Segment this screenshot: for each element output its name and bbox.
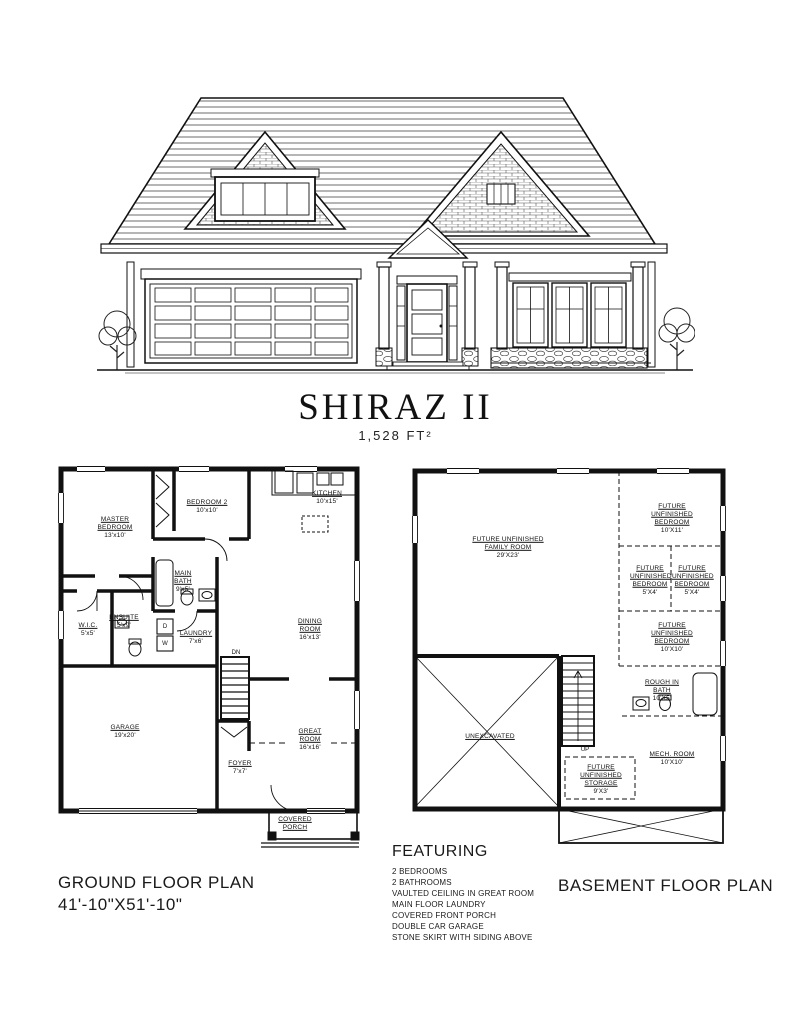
room-label-basement-bedroom-b: FUTURE UNFINISHED BEDROOM 5'X4' [630,565,670,598]
stairs-dn-label: DN [232,650,241,656]
featuring-section: FEATURING 2 BEDROOMS 2 BATHROOMS VAULTED… [392,843,582,943]
room-label-storage: FUTURE UNFINISHED STORAGE 9'X3' [578,764,624,797]
room-label-bedroom2: BEDROOM 2 10'x10' [183,499,231,515]
room-label-basement-bedroom-a: FUTURE UNFINISHED BEDROOM 10'X11' [645,503,699,536]
room-label-laundry: LAUNDRY 7'x6' [176,630,216,646]
plan-area: 1,528 FT² [0,428,791,443]
dryer-label: D [163,624,167,630]
floor-plan-sheet: SHIRAZ II 1,528 FT² [0,0,791,1024]
room-label-kitchen: KITCHEN 10'x15' [304,490,350,506]
room-label-mech-room: MECH. ROOM 10'X10' [639,751,705,767]
room-label-foyer: FOYER 7'x7' [222,760,258,776]
featuring-heading: FEATURING [392,843,582,861]
room-label-great-room: GREAT ROOM 16'x16' [292,728,328,752]
basement-caption-title: BASEMENT FLOOR PLAN [558,875,773,897]
room-label-master-bedroom: MASTER BEDROOM 13'x10' [94,516,136,540]
front-elevation-drawing [95,26,695,376]
featuring-item: VAULTED CEILING IN GREAT ROOM [392,888,582,899]
unexcavated-area [415,656,559,807]
room-label-wic: W.I.C. 5'x5' [74,622,102,638]
ground-floor-caption-dimensions: 41'-10"X51'-10" [58,894,254,916]
basement-stoop [559,809,723,843]
featuring-item: DOUBLE CAR GARAGE [392,921,582,932]
room-label-family-room: FUTURE UNFINISHED FAMILY ROOM 29'X23' [466,536,550,560]
garage-door [141,269,361,363]
right-porch-windows [491,262,651,368]
stairs-up-label: UP [581,747,589,753]
featuring-item: COVERED FRONT PORCH [392,910,582,921]
basement-caption: BASEMENT FLOOR PLAN [558,875,773,897]
room-label-garage: GARAGE 19'x20' [102,724,148,740]
featuring-list: 2 BEDROOMS 2 BATHROOMS VAULTED CEILING I… [392,866,582,943]
ground-line [97,370,693,373]
room-label-covered-porch: COVERED PORCH [273,816,317,832]
ground-floor-caption: GROUND FLOOR PLAN 41'-10"X51'-10" [58,872,254,916]
room-label-rough-in-bath: ROUGH IN BATH 10'X5' [640,679,684,703]
basement-stairs [562,656,594,746]
featuring-item: 2 BEDROOMS [392,866,582,877]
ground-stairs [221,657,249,719]
plan-title: SHIRAZ II [0,386,791,429]
room-label-unexcavated: UNEXCAVATED [455,733,525,741]
washer-label: W [162,641,168,647]
room-label-main-bath: MAIN BATH 9'x5' [168,570,198,594]
ground-floor-caption-title: GROUND FLOOR PLAN [58,872,254,894]
featuring-item: STONE SKIRT WITH SIDING ABOVE [392,932,582,943]
room-label-basement-bedroom-c: FUTURE UNFINISHED BEDROOM 5'X4' [672,565,712,598]
room-label-basement-bedroom-d: FUTURE UNFINISHED BEDROOM 10'X10' [645,622,699,655]
featuring-item: MAIN FLOOR LAUNDRY [392,899,582,910]
room-label-ensuite: ENSUITE 5'x9' [107,614,141,630]
featuring-item: 2 BATHROOMS [392,877,582,888]
right-tree [659,308,695,370]
room-label-dining-room: DINING ROOM 16'x13' [292,618,328,642]
front-entry [376,262,478,370]
